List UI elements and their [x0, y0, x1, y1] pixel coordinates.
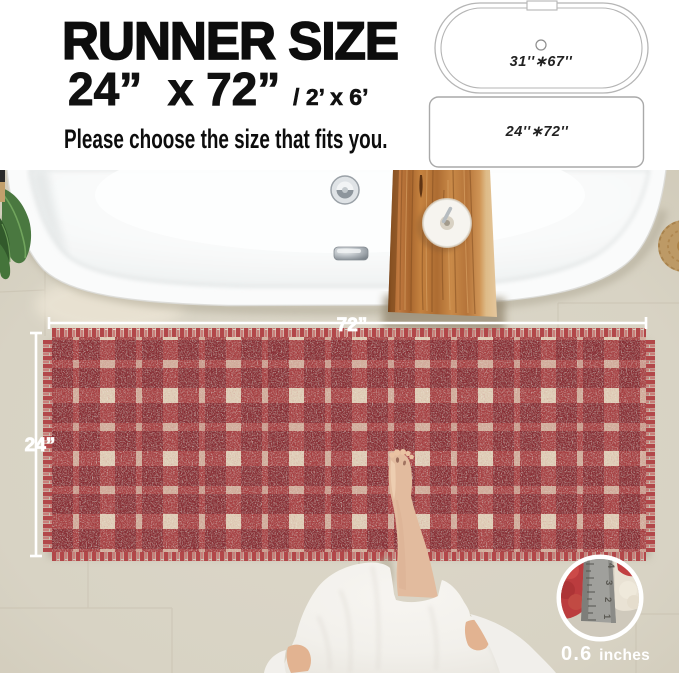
- svg-text:2: 2: [602, 597, 613, 602]
- svg-text:4: 4: [605, 563, 616, 569]
- svg-text:0.6 inches: 0.6 inches: [561, 643, 650, 665]
- svg-text:24”: 24”: [25, 435, 56, 456]
- svg-text:24''∗72'': 24''∗72'': [505, 124, 569, 140]
- svg-text:1: 1: [601, 614, 612, 620]
- svg-text:3: 3: [603, 580, 614, 585]
- svg-text:31''∗67'': 31''∗67'': [510, 54, 573, 70]
- svg-text:72”: 72”: [337, 315, 368, 336]
